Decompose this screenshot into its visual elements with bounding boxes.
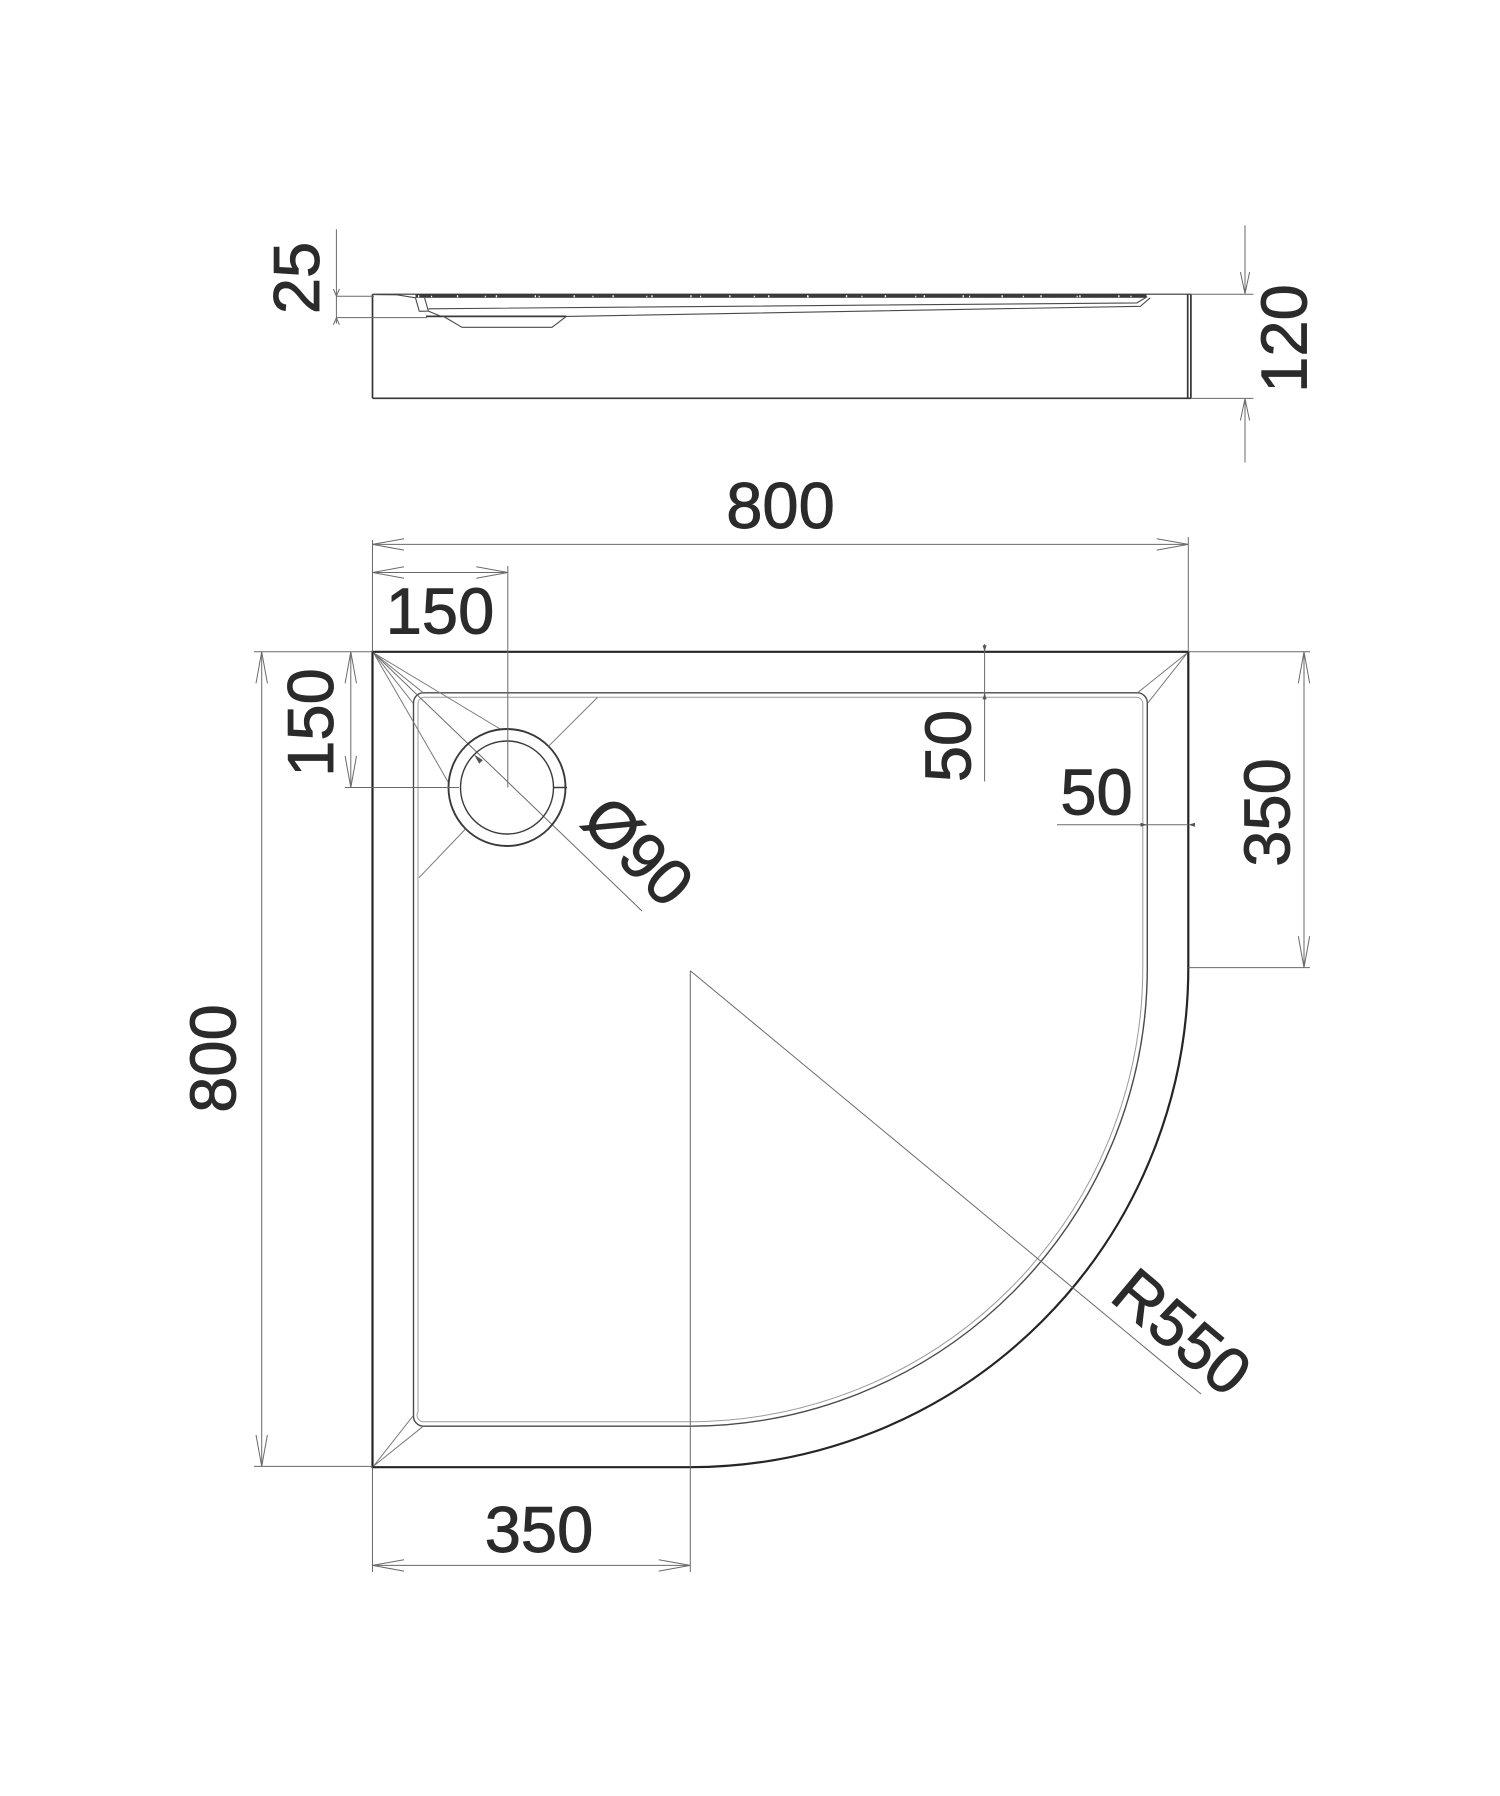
svg-text:800: 800 [177, 1004, 250, 1112]
svg-text:50: 50 [1060, 756, 1132, 829]
svg-text:350: 350 [1231, 758, 1304, 866]
svg-text:50: 50 [912, 710, 985, 782]
svg-text:Ø90: Ø90 [569, 782, 707, 920]
svg-text:150: 150 [386, 575, 494, 648]
svg-text:150: 150 [274, 668, 347, 776]
svg-text:120: 120 [1248, 284, 1321, 392]
svg-text:350: 350 [485, 1493, 593, 1566]
svg-text:25: 25 [260, 242, 333, 314]
svg-text:800: 800 [726, 469, 834, 542]
svg-text:R550: R550 [1099, 1254, 1265, 1410]
